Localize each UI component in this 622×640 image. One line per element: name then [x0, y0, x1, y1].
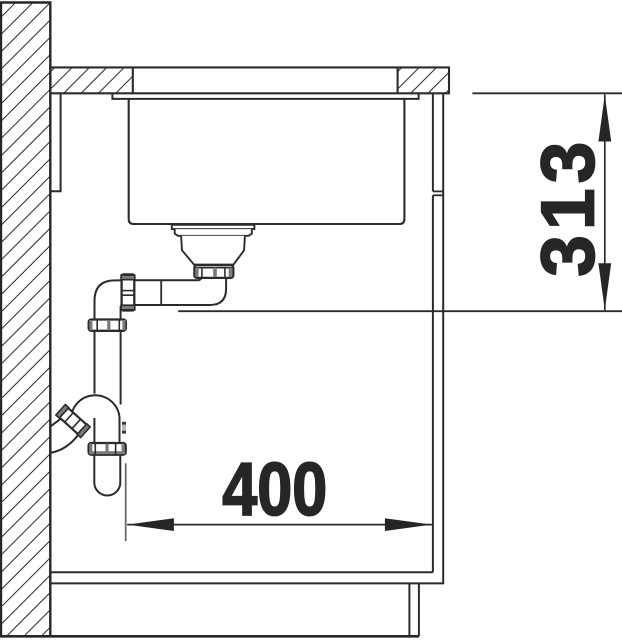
- svg-text:313: 313: [525, 137, 609, 277]
- svg-text:400: 400: [222, 447, 327, 531]
